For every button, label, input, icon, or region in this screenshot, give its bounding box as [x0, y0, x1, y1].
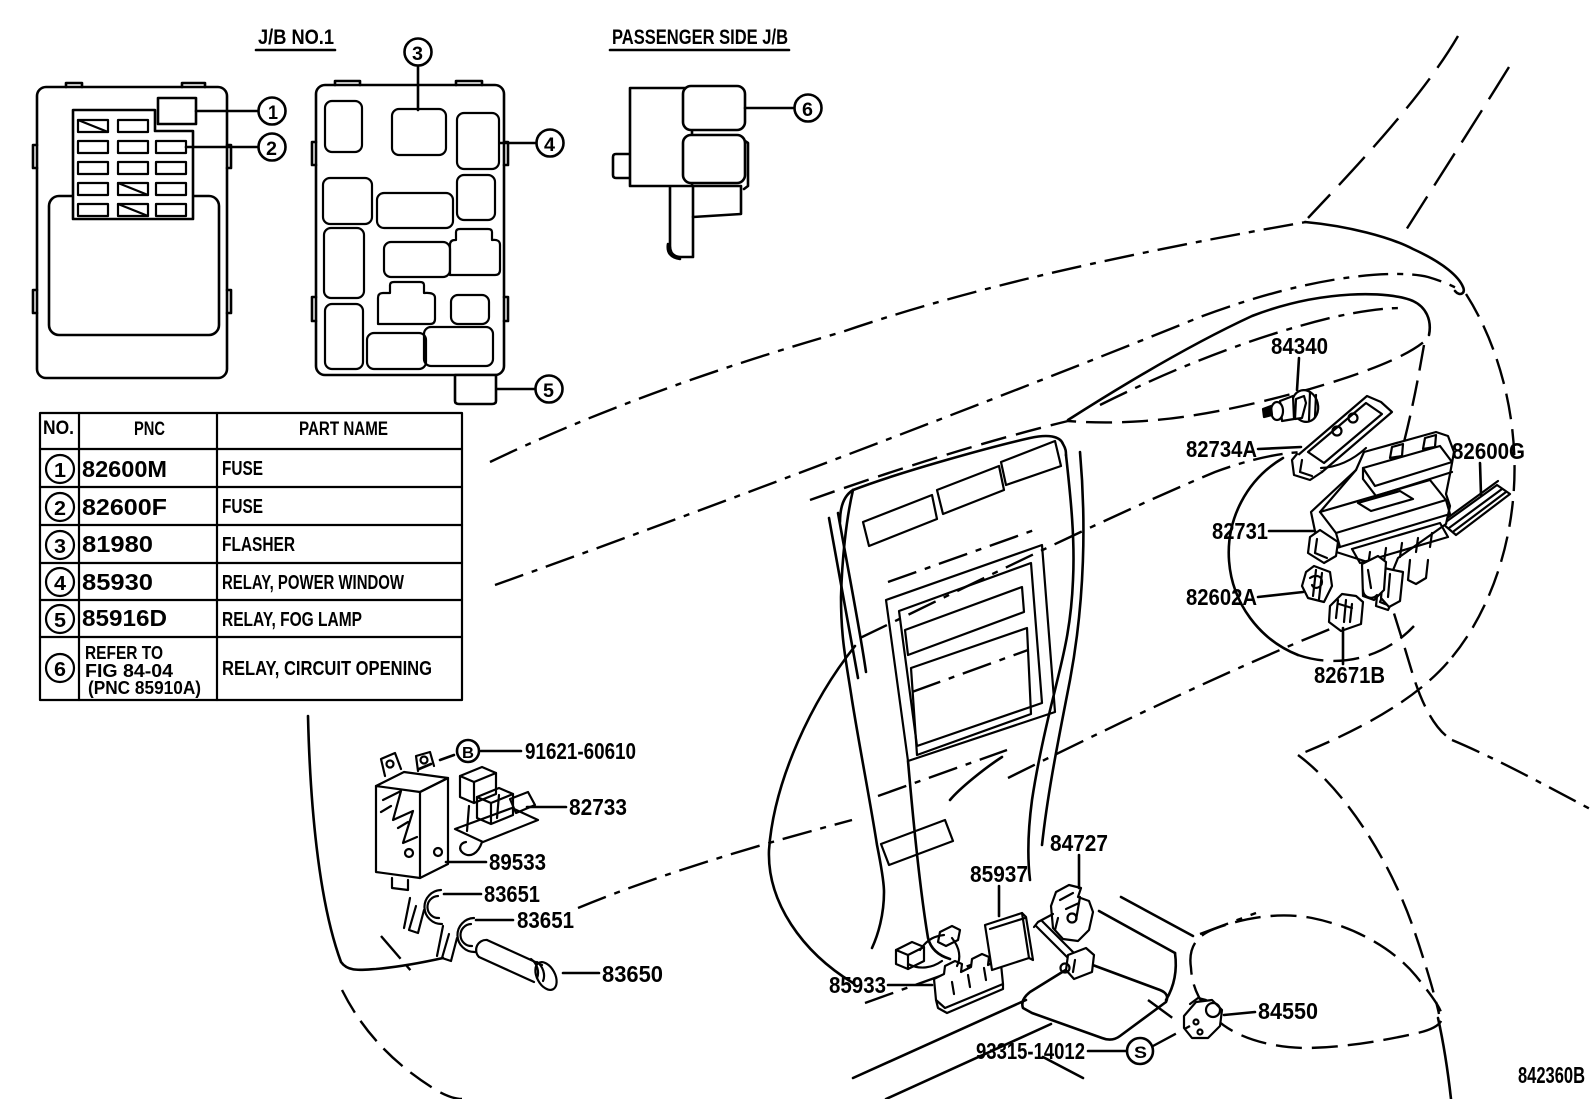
svg-text:2: 2: [266, 139, 277, 160]
svg-text:83651: 83651: [484, 881, 540, 907]
svg-text:84727: 84727: [1050, 830, 1108, 856]
svg-text:FUSE: FUSE: [222, 458, 263, 480]
svg-text:3: 3: [412, 44, 423, 65]
svg-text:82733: 82733: [569, 794, 627, 820]
svg-text:6: 6: [802, 100, 813, 121]
svg-text:S: S: [1134, 1043, 1147, 1062]
svg-text:89533: 89533: [489, 849, 546, 875]
svg-text:83651: 83651: [517, 907, 574, 933]
svg-text:6: 6: [54, 659, 66, 681]
svg-text:4: 4: [544, 135, 555, 156]
svg-text:1: 1: [268, 103, 278, 124]
svg-text:84340: 84340: [1271, 333, 1328, 359]
svg-text:84550: 84550: [1258, 998, 1318, 1024]
svg-text:PASSENGER SIDE J/B: PASSENGER SIDE J/B: [612, 26, 788, 49]
svg-text:NO.: NO.: [43, 418, 74, 439]
svg-text:93315-14012: 93315-14012: [976, 1038, 1085, 1064]
svg-text:RELAY, CIRCUIT OPENING: RELAY, CIRCUIT OPENING: [222, 658, 432, 680]
svg-text:5: 5: [54, 610, 66, 632]
svg-text:(PNC 85910A): (PNC 85910A): [88, 678, 201, 698]
svg-text:91621-60610: 91621-60610: [525, 738, 636, 764]
svg-text:83650: 83650: [602, 961, 663, 987]
svg-text:82734A: 82734A: [1186, 436, 1257, 462]
svg-text:FLASHER: FLASHER: [222, 534, 295, 556]
svg-text:85937: 85937: [970, 861, 1028, 887]
svg-text:85930: 85930: [82, 569, 153, 595]
svg-text:3: 3: [54, 536, 66, 558]
svg-text:85933: 85933: [829, 972, 886, 998]
svg-text:842360B: 842360B: [1518, 1062, 1585, 1088]
svg-text:82671B: 82671B: [1314, 662, 1385, 688]
svg-text:5: 5: [543, 381, 554, 402]
svg-text:85916D: 85916D: [82, 605, 167, 631]
svg-text:82731: 82731: [1212, 518, 1268, 544]
svg-text:FUSE: FUSE: [222, 496, 263, 518]
svg-text:82602A: 82602A: [1186, 584, 1257, 610]
svg-text:81980: 81980: [82, 531, 153, 557]
svg-text:PNC: PNC: [134, 419, 165, 440]
svg-text:82600G: 82600G: [1452, 438, 1525, 464]
svg-text:RELAY, FOG LAMP: RELAY, FOG LAMP: [222, 609, 362, 631]
svg-text:J/B NO.1: J/B NO.1: [258, 26, 334, 49]
svg-text:2: 2: [54, 498, 66, 520]
svg-text:REFER TO: REFER TO: [85, 643, 163, 663]
svg-text:4: 4: [54, 573, 67, 595]
svg-text:PART NAME: PART NAME: [299, 419, 388, 440]
svg-text:82600M: 82600M: [82, 456, 167, 482]
svg-text:RELAY, POWER WINDOW: RELAY, POWER WINDOW: [222, 572, 404, 594]
svg-text:B: B: [462, 745, 474, 762]
svg-text:82600F: 82600F: [82, 494, 167, 520]
svg-text:1: 1: [54, 460, 66, 482]
